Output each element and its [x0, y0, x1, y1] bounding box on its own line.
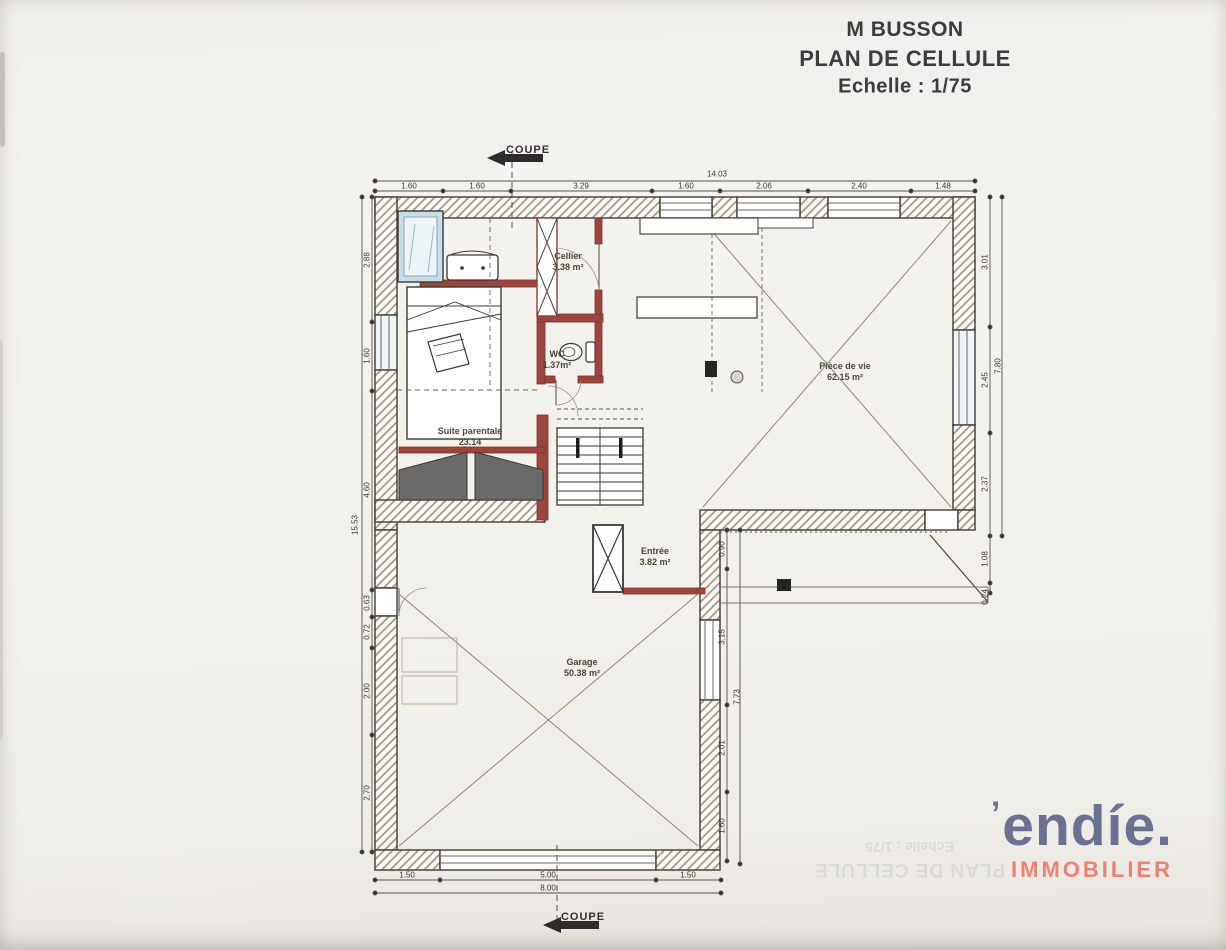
agency-logo: ’endíe. IMMOBILIER — [928, 798, 1173, 881]
dim-label: 3.01 — [981, 254, 990, 270]
room-label-entree: Entrée 3.82 m² — [639, 546, 670, 569]
dim-label-top-total: 14.03 — [707, 170, 727, 179]
room-name: Pièce de vie — [819, 361, 871, 372]
dim-label: 1.48 — [935, 182, 951, 191]
dim-label: 1.50 — [680, 871, 696, 880]
dim-label: 0.24 — [981, 589, 990, 605]
room-label-garage: Garage 50.38 m² — [564, 657, 600, 680]
coupe-label-bottom: COUPE — [561, 911, 605, 923]
dim-label: 1.60 — [718, 818, 727, 834]
dim-label-left-total: 15.53 — [351, 515, 360, 535]
dim-label: 1.60 — [469, 182, 485, 191]
dim-label: 1.60 — [363, 348, 372, 364]
room-name: WC — [543, 349, 572, 360]
logo-tagline: IMMOBILIER — [928, 859, 1173, 881]
room-area: 1.37m² — [543, 360, 572, 371]
room-area: 50.38 m² — [564, 668, 600, 679]
dim-label: 2.06 — [756, 182, 772, 191]
stairs — [557, 409, 643, 505]
title-plan: PLAN DE CELLULE — [799, 46, 1011, 72]
room-label-suite-parentale: Suite parentale 23.14 — [438, 426, 503, 449]
room-name: Suite parentale — [438, 426, 503, 437]
logo-brand-text: endíe. — [1002, 794, 1173, 858]
room-name: Garage — [564, 657, 600, 668]
dim-label: 2.00 — [363, 683, 372, 699]
dim-label: 2.70 — [363, 785, 372, 801]
dim-label-garage-total: 7.73 — [733, 689, 742, 705]
garage-interior — [399, 594, 698, 846]
dim-label-bottom-total: 8.00 — [540, 884, 556, 893]
logo-wordmark: ’endíe. — [928, 798, 1173, 855]
dim-label-right-total: 7.80 — [994, 358, 1003, 374]
room-area: 3.38 m² — [552, 262, 583, 273]
bedroom-furniture — [398, 211, 543, 500]
dim-label: 2.37 — [981, 476, 990, 492]
dim-label: 0.90 — [718, 541, 727, 557]
room-label-piece-de-vie: Pièce de vie 62.15 m² — [819, 361, 871, 384]
dim-label: 5.00 — [540, 871, 556, 880]
dim-label: 3.15 — [718, 629, 727, 645]
title-scale: Echelle : 1/75 — [838, 76, 972, 99]
dim-label: 2.01 — [718, 740, 727, 756]
scanned-floorplan-page: M BUSSON PLAN DE CELLULE Echelle : 1/75 … — [0, 0, 1226, 950]
dim-label: 2.40 — [851, 182, 867, 191]
room-name: Cellier — [552, 251, 583, 262]
room-area: 23.14 — [438, 437, 503, 448]
living-room — [637, 218, 951, 507]
dim-label: 2.88 — [363, 252, 372, 268]
room-area: 3.82 m² — [639, 557, 670, 568]
room-label-wc: WC 1.37m² — [543, 349, 572, 372]
dim-label: 1.60 — [401, 182, 417, 191]
dim-label: 1.50 — [399, 871, 415, 880]
room-label-cellier: Cellier 3.38 m² — [552, 251, 583, 274]
dim-label: 1.08 — [981, 551, 990, 567]
dim-label: 4.60 — [363, 482, 372, 498]
room-area: 62.15 m² — [819, 372, 871, 383]
terrace — [720, 532, 988, 603]
title-client: M BUSSON — [846, 18, 963, 42]
dim-label: 1.60 — [678, 182, 694, 191]
dim-label: 3.29 — [573, 182, 589, 191]
dim-label: 0.72 — [363, 624, 372, 640]
coupe-label-top: COUPE — [506, 144, 550, 156]
dim-label: 2.45 — [981, 372, 990, 388]
structural-columns — [537, 218, 623, 592]
logo-tick-mark: ’ — [991, 795, 1001, 833]
dim-label: 0.63 — [363, 595, 372, 611]
room-name: Entrée — [639, 546, 670, 557]
